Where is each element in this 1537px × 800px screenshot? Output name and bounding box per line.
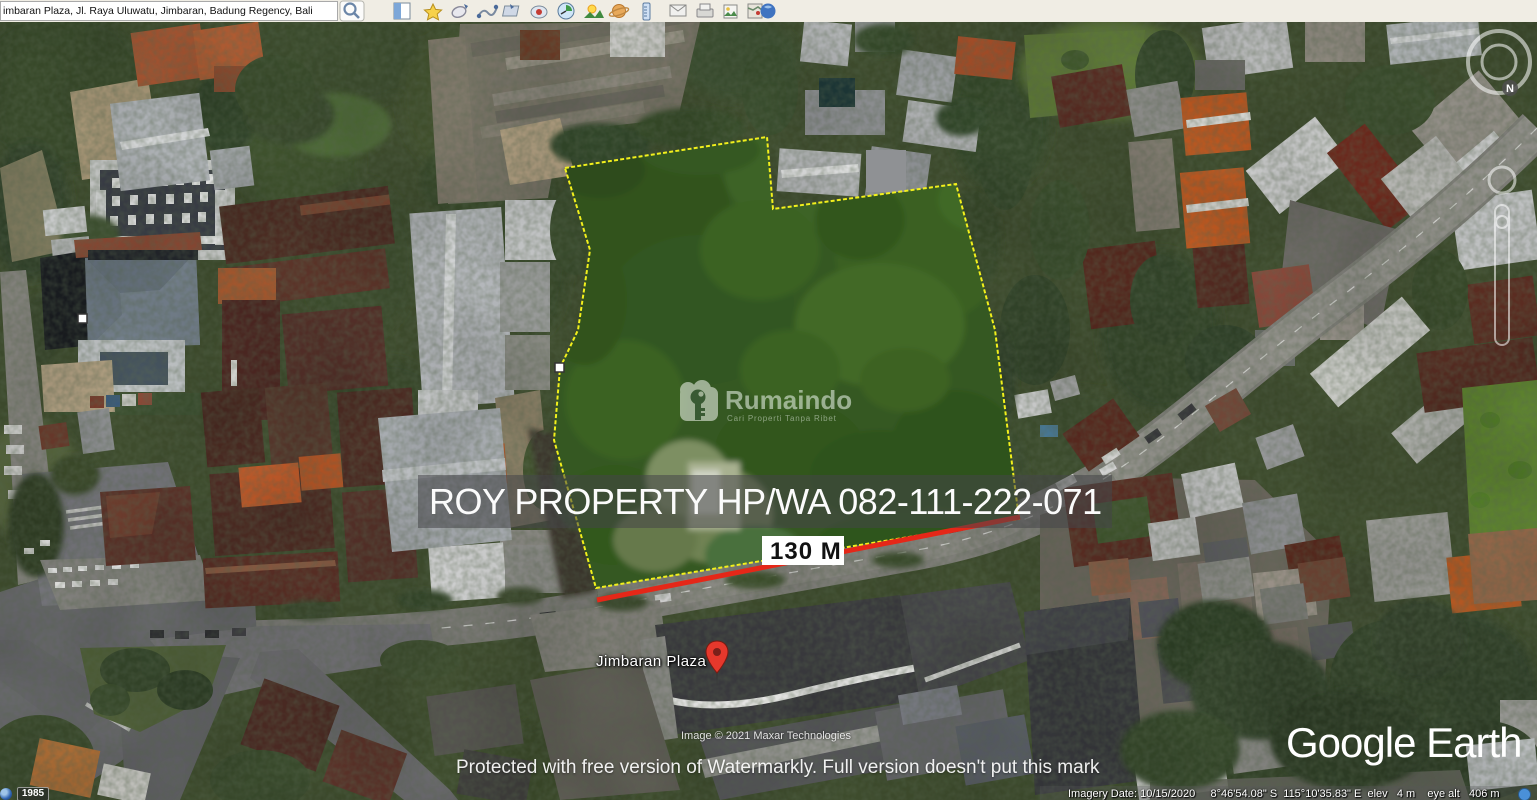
- svg-text:N: N: [1506, 83, 1514, 95]
